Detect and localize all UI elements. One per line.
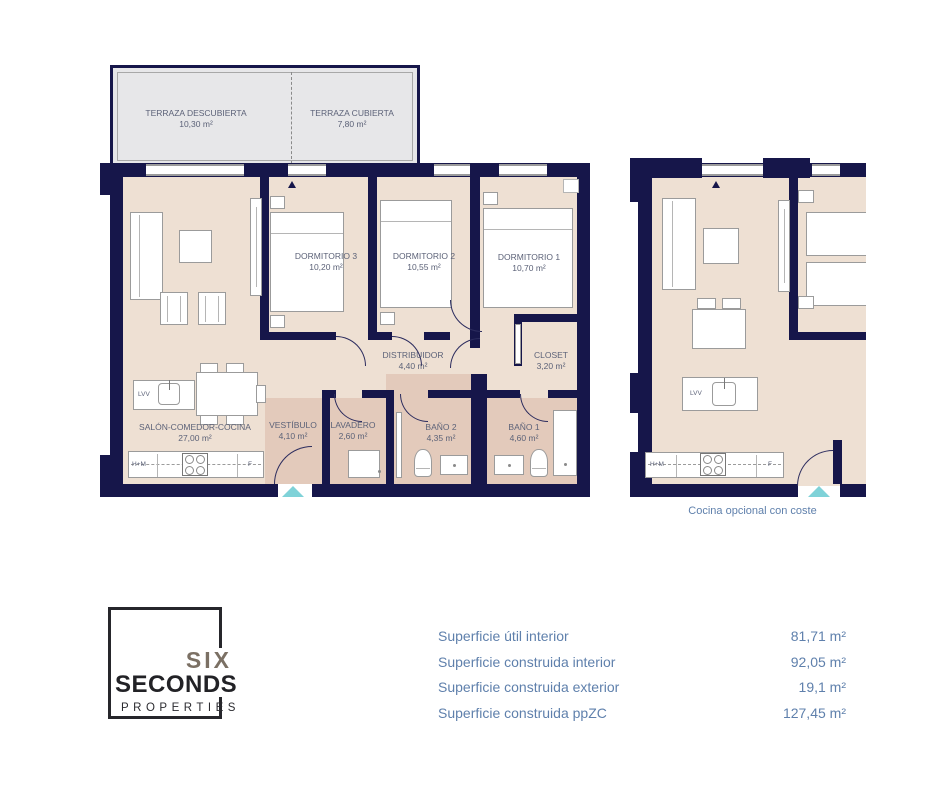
surface-label: Superficie construida ppZC [438, 701, 607, 727]
alt-plan-caption: Cocina opcional con coste [655, 505, 850, 517]
wardrobe-panel [778, 200, 790, 292]
room-name: DISTRIBUIDOR [383, 350, 444, 361]
surface-value: 19,1 m² [799, 675, 846, 701]
island-sink [158, 383, 180, 405]
island-sink [712, 382, 736, 406]
main-wall-left [110, 163, 123, 497]
washing-machine [348, 450, 380, 478]
sink-dot [453, 464, 456, 467]
room-name: DORMITORIO 2 [393, 251, 455, 262]
armchair [198, 292, 226, 325]
faucet [169, 380, 170, 390]
room-label-bano2: BAÑO 2 4,35 m² [425, 422, 456, 444]
room-name: CLOSET [534, 350, 568, 361]
toilet-line [416, 468, 430, 469]
surface-value: 127,45 m² [783, 701, 846, 727]
hob-burner [714, 466, 723, 475]
room-label-terraza-descubierta: TERRAZA DESCUBIERTA 10,30 m² [145, 108, 246, 130]
nightstand [483, 192, 498, 205]
fridge-label: F [248, 461, 252, 468]
alt-block-tr [763, 158, 810, 178]
room-area: 4,60 m² [508, 433, 539, 444]
main-corner-block-tl [100, 163, 112, 195]
room-area: 10,30 m² [145, 119, 246, 130]
counter-divider [237, 454, 238, 477]
alt-wall-living-bedroom [789, 177, 798, 339]
logo-word-properties: PROPERTIES [121, 702, 240, 714]
hob-burner [185, 455, 194, 464]
dishwasher-label: LVV [138, 391, 150, 398]
oven-micro-label: H+M [650, 461, 664, 468]
hob-burner [703, 466, 712, 475]
room-label-dormitorio1: DORMITORIO 1 10,70 m² [498, 252, 560, 274]
armchair-line [205, 296, 206, 322]
room-name: TERRAZA CUBIERTA [310, 108, 394, 119]
wall-closet-top [514, 314, 577, 322]
entrance-marker [282, 486, 304, 497]
room-area: 10,70 m² [498, 263, 560, 274]
room-name: DORMITORIO 3 [295, 251, 357, 262]
room-label-terraza-cubierta: TERRAZA CUBIERTA 7,80 m² [310, 108, 394, 130]
surface-row: Superficie construida exterior 19,1 m² [438, 675, 846, 701]
floorplan-sheet: TERRAZA DESCUBIERTA 10,30 m² TERRAZA CUB… [0, 0, 940, 788]
room-area: 4,40 m² [383, 361, 444, 372]
sofa-line [672, 201, 673, 287]
dining-table [692, 309, 746, 349]
bed-alt [806, 262, 866, 306]
hob-burner [196, 455, 205, 464]
window-sill [563, 179, 579, 193]
wardrobe-panel [250, 198, 262, 296]
coffee-table [703, 228, 739, 264]
room-label-dormitorio2: DORMITORIO 2 10,55 m² [393, 251, 455, 273]
room-name: BAÑO 1 [508, 422, 539, 433]
room-area: 2,60 m² [330, 431, 375, 442]
armchair-line [218, 296, 219, 322]
alt-wall-bedroom-bottom [789, 332, 866, 340]
nightstand [798, 190, 814, 203]
main-wall-right [577, 163, 590, 497]
room-area: 10,55 m² [393, 262, 455, 273]
logo-word-six: SIX [150, 648, 232, 672]
room-name: BAÑO 2 [425, 422, 456, 433]
nightstand [270, 196, 285, 209]
wardrobe-line [256, 207, 257, 287]
dishwasher-label: LVV [690, 390, 702, 397]
room-name: VESTÍBULO [269, 420, 317, 431]
room-name: DORMITORIO 1 [498, 252, 560, 263]
wall-bedrooms-bottom-b [368, 332, 392, 340]
wall-wetrow-top-c [428, 390, 471, 398]
hob-burner [185, 466, 194, 475]
nightstand [798, 296, 814, 309]
sink-bano2 [440, 455, 468, 475]
room-area: 3,20 m² [534, 361, 568, 372]
surface-value: 81,71 m² [791, 624, 846, 650]
surface-value: 92,05 m² [791, 650, 846, 676]
window [812, 164, 840, 176]
wall-bedrooms-bottom-a [260, 332, 336, 340]
alt-block-left-mid [630, 373, 652, 413]
counter-divider [157, 454, 158, 477]
surface-row: Superficie útil interior 81,71 m² [438, 624, 846, 650]
room-area: 4,35 m² [425, 433, 456, 444]
dining-table [196, 372, 258, 416]
alt-wall-bottom-a [638, 484, 798, 497]
hob-burner [196, 466, 205, 475]
window [499, 164, 547, 176]
nightstand [270, 315, 285, 328]
coffee-table [179, 230, 212, 263]
logo-word-seconds: SECONDS [115, 672, 240, 697]
room-label-salon: SALÓN-COMEDOR-COCINA 27,00 m² [139, 422, 251, 444]
wall-bano2-bano1 [471, 374, 487, 484]
surface-row: Superficie construida interior 92,05 m² [438, 650, 846, 676]
window [288, 164, 326, 176]
shower-bano2 [396, 412, 402, 478]
wall-bedrooms-bottom-c [424, 332, 450, 340]
sofa [662, 198, 696, 290]
window [146, 164, 244, 176]
room-name: TERRAZA DESCUBIERTA [145, 108, 246, 119]
room-label-distribuidor: DISTRIBUIDOR 4,40 m² [383, 350, 444, 372]
room-name: LAVADERO [330, 420, 375, 431]
counter-divider [676, 455, 677, 477]
wall-vestibulo-lavadero [322, 390, 330, 484]
terrace-divider [291, 72, 292, 164]
toilet-bano2 [414, 449, 432, 477]
alt-wall-bottom-b [840, 484, 866, 497]
alt-wall-left [638, 163, 652, 497]
bed-pillow-line [484, 209, 572, 230]
entrance-marker [808, 486, 830, 497]
fridge-label: F [768, 461, 772, 468]
orientation-marker [712, 181, 720, 188]
sofa-line [139, 215, 140, 297]
bed-alt [806, 212, 866, 256]
room-area: 4,10 m² [269, 431, 317, 442]
bed-pillow-line [381, 201, 451, 222]
room-area: 7,80 m² [310, 119, 394, 130]
sink-bano1 [494, 455, 524, 475]
sink-dot [508, 464, 511, 467]
surface-table: Superficie útil interior 81,71 m² Superf… [438, 624, 846, 726]
wall-bano1-top [548, 390, 577, 398]
main-wall-bottom [110, 484, 590, 497]
room-label-dormitorio3: DORMITORIO 3 10,20 m² [295, 251, 357, 273]
window [434, 164, 472, 176]
armchair-line [180, 296, 181, 322]
room-area: 10,20 m² [295, 262, 357, 273]
shower-bano1 [553, 410, 577, 476]
oven-micro-label: H+M [132, 461, 146, 468]
surface-row: Superficie construida ppZC 127,45 m² [438, 701, 846, 727]
orientation-marker [288, 181, 296, 188]
wall-lavadero-bano2 [386, 390, 394, 484]
surface-label: Superficie construida interior [438, 650, 615, 676]
hob-burner [703, 455, 712, 464]
room-label-closet: CLOSET 3,20 m² [534, 350, 568, 372]
wall-closet-bottom [487, 390, 520, 398]
armchair-line [167, 296, 168, 322]
surface-label: Superficie construida exterior [438, 675, 619, 701]
room-label-lavadero: LAVADERO 2,60 m² [330, 420, 375, 442]
room-label-bano1: BAÑO 1 4,60 m² [508, 422, 539, 444]
dining-chair [722, 298, 741, 309]
alt-wall-stub-right [833, 440, 842, 484]
room-area: 27,00 m² [139, 433, 251, 444]
dining-chair [697, 298, 716, 309]
main-corner-block-bl [100, 455, 112, 497]
room-name: SALÓN-COMEDOR-COCINA [139, 422, 251, 433]
hob-burner [714, 455, 723, 464]
toilet-bano1 [530, 449, 548, 477]
counter-divider [756, 455, 757, 477]
sofa [130, 212, 163, 300]
toilet-line [532, 468, 546, 469]
wardrobe-line [784, 209, 785, 283]
faucet [724, 378, 725, 389]
dining-chair [256, 385, 266, 403]
shower-drain [564, 463, 567, 466]
armchair [160, 292, 188, 325]
room-label-vestibulo: VESTÍBULO 4,10 m² [269, 420, 317, 442]
nightstand [380, 312, 395, 325]
wall-dorm3-dorm2 [368, 163, 377, 332]
surface-label: Superficie útil interior [438, 624, 569, 650]
fixture-dot [378, 470, 381, 473]
bed-pillow-line [271, 213, 343, 234]
closet-sliding-door [515, 324, 521, 364]
